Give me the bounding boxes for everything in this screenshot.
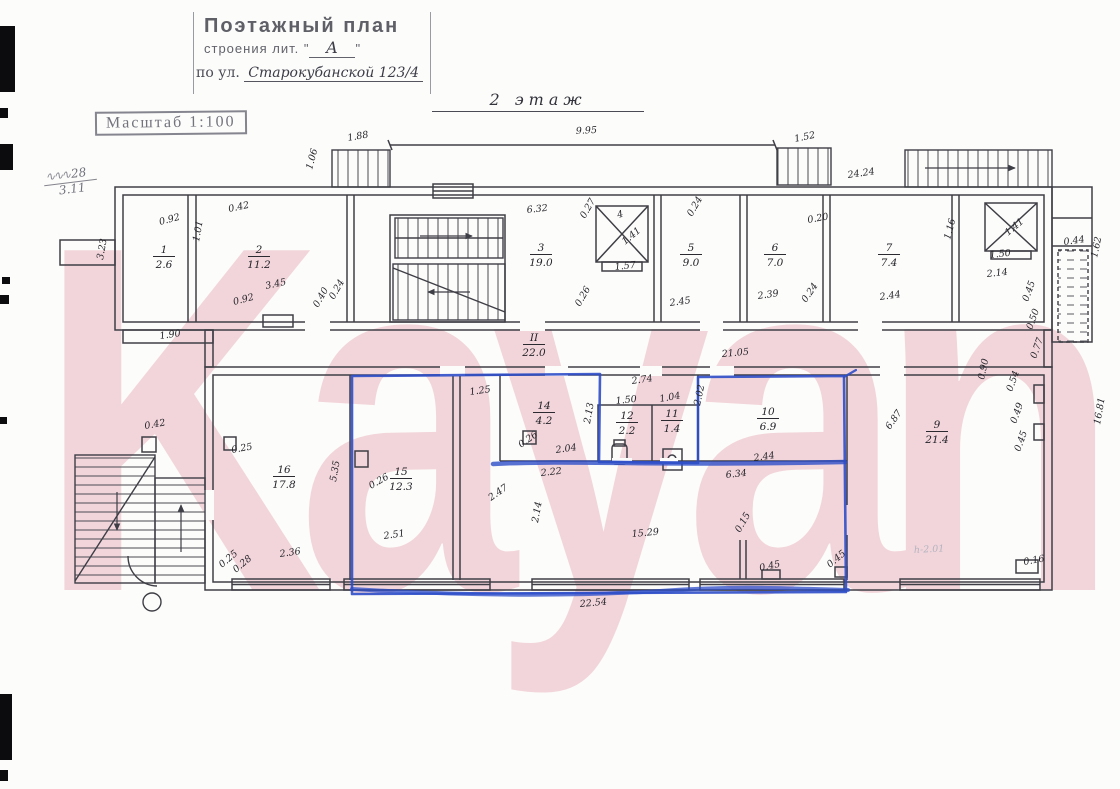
balcony-annex bbox=[1058, 250, 1088, 342]
svg-text:12: 12 bbox=[620, 410, 634, 422]
balcony-left bbox=[332, 150, 390, 187]
svg-text:4.2: 4.2 bbox=[535, 415, 553, 427]
svg-text:9: 9 bbox=[934, 419, 941, 431]
svg-text:17.8: 17.8 bbox=[272, 479, 296, 491]
svg-text:7: 7 bbox=[886, 242, 893, 254]
scanned-floorplan-sheet: Kayan bbox=[0, 0, 1120, 789]
stamp-building-prefix: строения лит. " bbox=[204, 41, 309, 56]
scan-artifact-marks bbox=[0, 26, 15, 781]
stamp-building-line: строения лит. "А" bbox=[204, 38, 430, 58]
stamp-box: Поэтажный план строения лит. "А" по ул. … bbox=[193, 12, 431, 94]
dimension-label: 1.50 bbox=[615, 394, 637, 407]
svg-text:21.4: 21.4 bbox=[924, 434, 948, 446]
stamp-litera-value: А bbox=[309, 38, 355, 58]
stamp-street-prefix: по ул. bbox=[196, 65, 240, 81]
svg-text:2: 2 bbox=[255, 244, 263, 256]
balcony-right bbox=[777, 148, 831, 185]
external-stair-right-flight bbox=[155, 478, 205, 583]
dimension-label: 9.95 bbox=[576, 125, 598, 137]
dimension-label: 6.34 bbox=[725, 468, 747, 481]
scale-stamp: Масштаб 1:100 bbox=[95, 110, 247, 136]
svg-text:5: 5 bbox=[688, 242, 695, 254]
svg-text:15: 15 bbox=[394, 466, 408, 478]
dimension-label: 1.50 bbox=[989, 248, 1011, 261]
svg-text:22.0: 22.0 bbox=[521, 347, 546, 359]
stamp-building-suffix: " bbox=[355, 41, 361, 56]
svg-text:7.4: 7.4 bbox=[881, 257, 898, 269]
floor-title: 2 этаж bbox=[432, 90, 644, 112]
svg-text:1: 1 bbox=[161, 244, 168, 256]
svg-text:11: 11 bbox=[665, 408, 678, 420]
svg-text:12.3: 12.3 bbox=[389, 481, 413, 493]
svg-text:2.2: 2.2 bbox=[618, 425, 636, 437]
dimension-label: h-2.01 bbox=[914, 543, 945, 556]
svg-text:1.4: 1.4 bbox=[664, 423, 681, 435]
svg-text:9.0: 9.0 bbox=[683, 257, 700, 269]
dimension-label: 16.81 bbox=[1092, 397, 1108, 426]
dimension-label: 2.14 bbox=[985, 267, 1008, 280]
svg-text:11.2: 11.2 bbox=[247, 259, 271, 271]
dimension-label: 6.32 bbox=[526, 203, 548, 216]
stamp-title: Поэтажный план bbox=[204, 15, 430, 38]
svg-text:6: 6 bbox=[772, 242, 779, 254]
svg-text:7.0: 7.0 bbox=[767, 257, 784, 269]
stamp-street-value: Старокубанской 123/4 bbox=[244, 65, 423, 82]
svg-text:14: 14 bbox=[537, 400, 550, 412]
dimension-label: 2.22 bbox=[539, 466, 562, 479]
svg-text:II: II bbox=[529, 332, 539, 344]
svg-text:2.6: 2.6 bbox=[155, 259, 173, 271]
svg-text:16: 16 bbox=[277, 464, 291, 476]
svg-text:3: 3 bbox=[538, 242, 545, 254]
svg-text:6.9: 6.9 bbox=[760, 421, 777, 433]
svg-text:19.0: 19.0 bbox=[529, 257, 553, 269]
svg-text:10: 10 bbox=[761, 406, 775, 418]
dimension-label: 1.57 bbox=[614, 260, 637, 273]
stamp-street-line: по ул. Старокубанской 123/4 bbox=[196, 65, 430, 81]
